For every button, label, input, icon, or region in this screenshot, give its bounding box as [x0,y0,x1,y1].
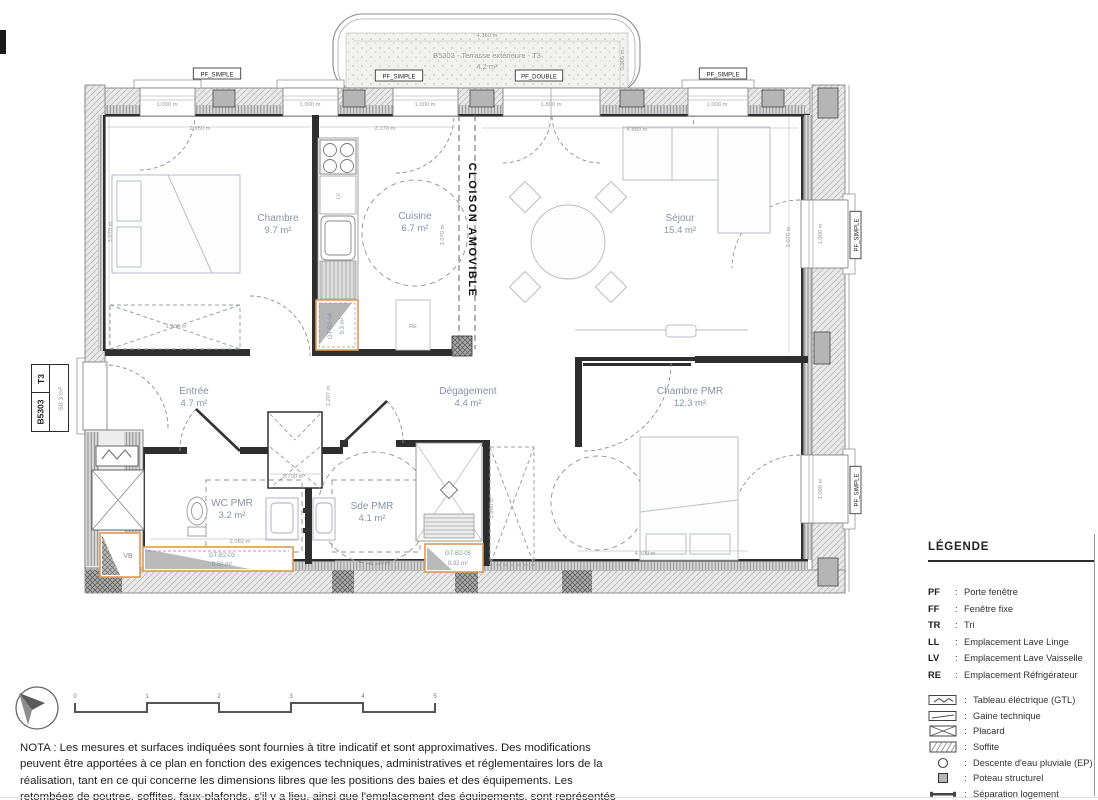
room-name: Chambre [257,213,299,224]
lv-label: LV [336,193,342,200]
legend-abbrev-row: TR:Tri [928,617,1095,634]
window [134,80,201,116]
separation-block [332,570,354,593]
scale-numbers: 012345 [73,694,437,700]
dimension-label: 2.082 m [230,539,251,545]
legend-key: LL [928,637,955,647]
dimension-label: 1.000 m [157,102,178,108]
legend-colon: : [964,773,973,783]
gt04-code: GT-B2-04 [328,312,334,339]
poteau-icon [928,772,964,784]
room-label: Sde PMR4.1 m² [351,501,394,524]
nota-text: NOTA : Les mesures et surfaces indiquées… [20,740,616,800]
legend-abbrev-row: LV:Emplacement Lave Vaisselle [928,650,1095,667]
legend-label: Gaine technique [973,711,1095,721]
dimension-label: 0.700 m [283,474,304,480]
gtl-icon [928,694,964,706]
dimension-label: 1.000 m [818,478,824,499]
dimension-label: 1.800 m [489,497,495,518]
legend-symbol-row: :Placard [928,723,1095,739]
room-label: Cuisine6.7 m² [398,211,432,234]
sde-door-leaf [343,401,387,443]
separation-block [455,570,478,593]
cloison-amovible: CLOISON AMOVIBLE [459,115,478,349]
dimension-label: 1.207 m [326,385,332,406]
room-name: WC PMR [211,498,253,509]
room-area: 4.4 m² [455,398,482,409]
page-edge-mark [0,30,6,54]
legend-label: Emplacement Lave Linge [964,637,1095,647]
room-label: Dégagement4.4 m² [439,386,496,409]
separation-icon [928,788,964,800]
legend-symbol-row: :Tableau éléctrique (GTL) [928,692,1095,708]
legend-colon: : [964,726,973,736]
dimension-label: 1.000 m [300,102,321,108]
tri-block [452,336,472,356]
room-area: 3.2 m² [219,510,246,521]
dimension-label: 4.880 m [627,127,648,133]
entry-door-opening [77,358,107,434]
toilet [187,497,207,536]
legend-label: Tri [964,620,1095,630]
tableau-electrique-icon [96,446,138,466]
window [682,80,754,116]
window-tag-label: PF_SIMPLE [706,73,739,79]
window [801,449,855,529]
gt03-area: 0.50 m² [212,562,232,568]
wc-door-leaf [196,409,240,451]
entry-door-swing [105,365,168,428]
window [801,194,855,274]
window-tag-label: PF_DOUBLE [521,75,557,81]
room-area: 12.3 m² [674,398,706,409]
bed-chambre [112,175,240,273]
ep-icon [928,757,964,769]
legend-abbrev-row: LL:Emplacement Lave Linge [928,634,1095,651]
scale-tick-label: 3 [289,694,293,700]
legend-key: TR [928,620,955,630]
floor-plan-page: B5303 - Terrasse extérieure - T3 4.2 m² [0,0,1098,800]
room-name: Dégagement [439,386,496,397]
room-label: Séjour15.4 m² [664,213,696,236]
legend-abbrev-row: RE:Emplacement Réfrigérateur [928,667,1095,684]
kitchen-counter: LV [318,138,358,300]
dimension-label: 1.000 m [707,102,728,108]
dimension-label: 4.500 m [635,551,656,557]
scale-tick-label: 0 [73,694,77,700]
legend-colon: : [955,653,964,663]
legend-label: Tableau éléctrique (GTL) [973,695,1095,705]
window-tag: PF_SIMPLE [375,70,422,81]
legend-key: LV [928,653,955,663]
soffite-icon [928,741,964,753]
window-tag-label: PF_SIMPLE [855,473,861,506]
scale-tick-label: 1 [145,694,149,700]
dimension-label: 3.070 m [786,226,792,247]
room-label: Chambre9.7 m² [257,213,299,236]
window-tag: PF_SIMPLE [850,466,861,513]
shower [416,443,482,541]
wc-door-swing [180,409,196,451]
washbasins [266,498,335,540]
window-swing [396,115,454,173]
window-swing [503,115,551,163]
service-zone: VB [85,430,144,577]
wardrobe-chambre-pmr [490,447,534,565]
unit-number: B5303 [36,399,46,424]
room-area: 4.1 m² [359,513,386,524]
vb-label: VB [123,553,133,560]
room-name: Sde PMR [351,501,394,512]
north-arrow-icon [16,687,58,729]
legend-colon: : [964,758,973,768]
dimension-label: 4.360 m [477,33,498,39]
dimension-label: 1.000 m [415,102,436,108]
legend-key: PF [928,587,955,597]
window-tag-label: PF_SIMPLE [200,73,233,79]
legend-colon: : [964,695,973,705]
legend-colon: : [964,742,973,752]
legend-border-line [1094,534,1095,796]
gaine-icon [928,710,964,722]
terrace-label: B5303 - Terrasse extérieure - T3 [433,51,541,60]
room-area: 15.4 m² [664,225,696,236]
dimension-label: 3.070 m [108,221,114,242]
room-name: Chambre PMR [657,386,723,397]
legend-label: Emplacement Lave Vaisselle [964,653,1095,663]
gt05-code: GT-B2-05 [445,551,472,557]
re-label: RE [409,324,417,330]
room-name: Cuisine [398,211,432,222]
gt04-area: 0.3 m² [340,317,346,334]
unit-area: 60.3 m² [58,386,65,409]
bottom-rule [0,797,1098,798]
separation-block [562,570,592,593]
legend-symbol-row: :Gaine technique [928,708,1095,724]
legend-colon: : [955,637,964,647]
fridge-slot: RE [396,300,430,350]
legend-symbol-row: :Soffite [928,739,1095,755]
legend-abbrev-row: FF:Fenêtre fixe [928,601,1095,618]
dining-table [509,181,626,302]
legend-key: FF [928,604,955,614]
scale-tick-label: 5 [433,694,437,700]
legend-abbreviations: PF:Porte fenêtreFF:Fenêtre fixeTR:TriLL:… [928,584,1095,683]
sofa [623,127,770,233]
legend-symbol-row: :Descente d'eau pluviale (EP) [928,755,1095,771]
legend-label: Descente d'eau pluviale (EP) [973,758,1095,768]
window-tag: PF_SIMPLE [850,211,861,258]
cooktop [320,140,356,174]
scale-bar: 012345 [73,694,437,712]
window-swing [732,455,800,523]
legend-symbols: :Tableau éléctrique (GTL):Gaine techniqu… [928,692,1095,800]
room-area: 4.7 m² [181,398,208,409]
cloison-label: CLOISON AMOVIBLE [466,163,478,298]
room-label: Entrée4.7 m² [179,386,209,409]
room-name: Entrée [179,386,209,397]
dimension-label: 2.170 m [375,126,396,132]
tv-console [575,325,748,337]
vb-box: VB [100,533,140,577]
sink [321,216,355,260]
window-tag: PF_SIMPLE [193,68,240,79]
gt03-code: GT-B2-03 [209,553,236,559]
gt-box-03: GT-B2-03 0.50 m² [143,547,293,571]
dimension-label: 0.905 m [620,49,626,70]
gt-box-05: GT-B2-05 0.32 m² [425,544,483,572]
dimension-label: 3.070 m [440,224,446,245]
legend-label: Fenêtre fixe [964,604,1095,614]
gt05-area: 0.32 m² [448,561,468,567]
legend-abbrev-row: PF:Porte fenêtre [928,584,1095,601]
chambre-door-swing [250,296,310,356]
window-tag-label: PF_SIMPLE [855,218,861,251]
window-swing [140,115,195,170]
room-name: Séjour [666,213,696,224]
dimension-label: 1.900 m [166,324,187,330]
legend-label: Soffite [973,742,1095,752]
scale-tick-label: 4 [361,694,365,700]
gt-box-04: GT-B2-04 0.3 m² [316,300,358,350]
legend: LÉGENDE PF:Porte fenêtreFF:Fenêtre fixeT… [928,541,1095,800]
sde-door-swing [387,401,403,443]
room-area: 9.7 m² [265,225,292,236]
legend-colon: : [955,604,964,614]
legend-colon: : [955,587,964,597]
unit-tag: T3 B5303 60.3 m² [31,364,69,432]
legend-symbol-row: :Poteau structurel [928,770,1095,786]
terrace-area: 4.2 m² [476,62,498,71]
legend-label: Placard [973,726,1095,736]
window-tag: PF_DOUBLE [515,70,562,81]
dimension-label: 1.800 m [541,102,562,108]
window [277,80,344,116]
legend-label: Emplacement Réfrigérateur [964,670,1095,680]
bed-chambre-pmr [640,437,738,560]
dimension-label: 1.740 m [370,561,391,567]
room-label: Chambre PMR12.3 m² [657,386,723,409]
dimension-label: 2.950 m [190,126,211,132]
legend-title: LÉGENDE [928,541,1095,562]
window-tag-label: PF_SIMPLE [382,75,415,81]
unit-type: T3 [35,374,45,384]
dimension-label: 1.000 m [818,223,824,244]
legend-label: Porte fenêtre [964,587,1095,597]
placard-wc [92,470,144,530]
room-area: 6.7 m² [402,223,429,234]
legend-key: RE [928,670,955,680]
legend-colon: : [955,620,964,630]
window-tag: PF_SIMPLE [699,68,746,79]
window-swing [552,115,600,163]
terrace: B5303 - Terrasse extérieure - T3 4.2 m² [333,14,640,94]
unit-tag-left: T3 B5303 [32,365,50,431]
counter-hatch [320,261,356,299]
legend-colon: : [964,711,973,721]
legend-colon: : [955,670,964,680]
placard-icon [928,725,964,737]
room-label: WC PMR3.2 m² [211,498,253,521]
scale-tick-label: 2 [217,694,221,700]
legend-label: Poteau structurel [973,773,1095,783]
